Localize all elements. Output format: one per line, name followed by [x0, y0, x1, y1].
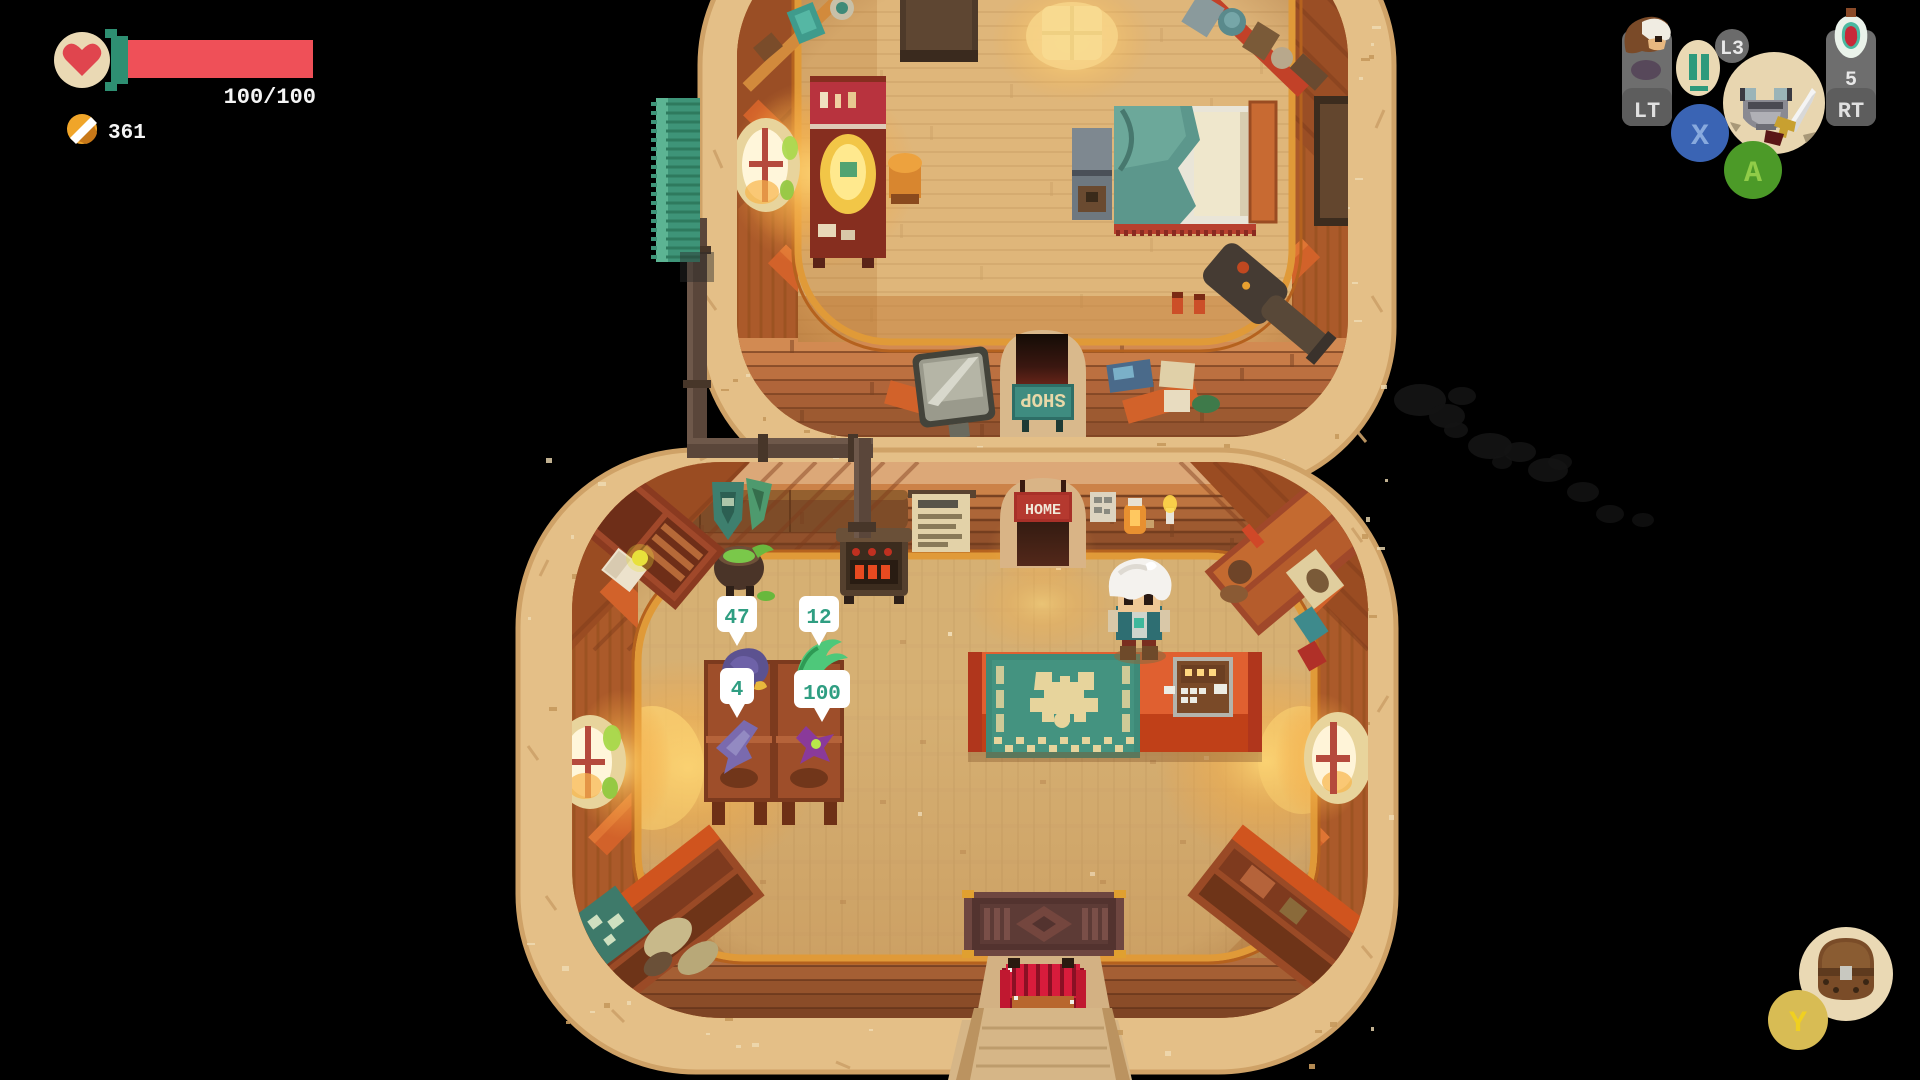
svg-text:361: 361 [108, 122, 146, 145]
svg-text:X: X [1691, 120, 1709, 154]
svg-text:4: 4 [731, 679, 744, 702]
svg-text:100/100: 100/100 [224, 85, 316, 110]
svg-text:LT: LT [1634, 99, 1660, 124]
svg-text:47: 47 [724, 607, 749, 630]
svg-text:5: 5 [1845, 69, 1857, 92]
svg-text:12: 12 [806, 607, 831, 630]
svg-text:Y: Y [1789, 1007, 1807, 1041]
svg-text:A: A [1744, 157, 1762, 191]
svg-text:L3: L3 [1720, 38, 1744, 61]
svg-text:SHOP: SHOP [1020, 388, 1066, 410]
svg-text:HOME: HOME [1025, 502, 1061, 519]
svg-text:RT: RT [1838, 99, 1864, 124]
svg-text:100: 100 [803, 683, 841, 706]
